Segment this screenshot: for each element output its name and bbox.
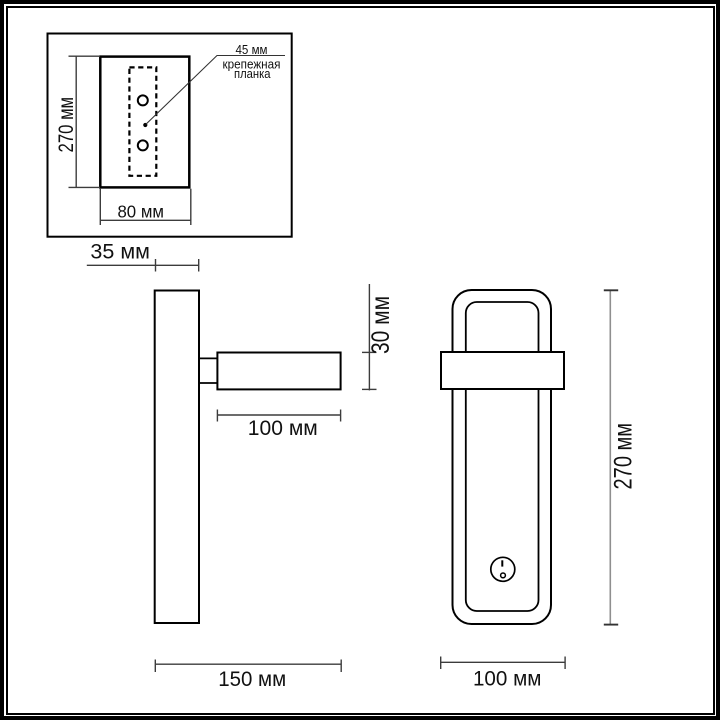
svg-text:30 мм: 30 мм [367,296,395,354]
svg-text:270 мм: 270 мм [610,423,638,490]
svg-text:80 мм: 80 мм [117,202,164,222]
svg-text:150 мм: 150 мм [218,667,286,691]
svg-text:35 мм: 35 мм [90,241,150,264]
svg-text:45 мм: 45 мм [236,42,268,57]
svg-text:100 мм: 100 мм [248,417,318,440]
svg-text:планка: планка [234,66,271,81]
svg-text:270 мм: 270 мм [54,97,78,153]
svg-text:100 мм: 100 мм [473,667,542,690]
